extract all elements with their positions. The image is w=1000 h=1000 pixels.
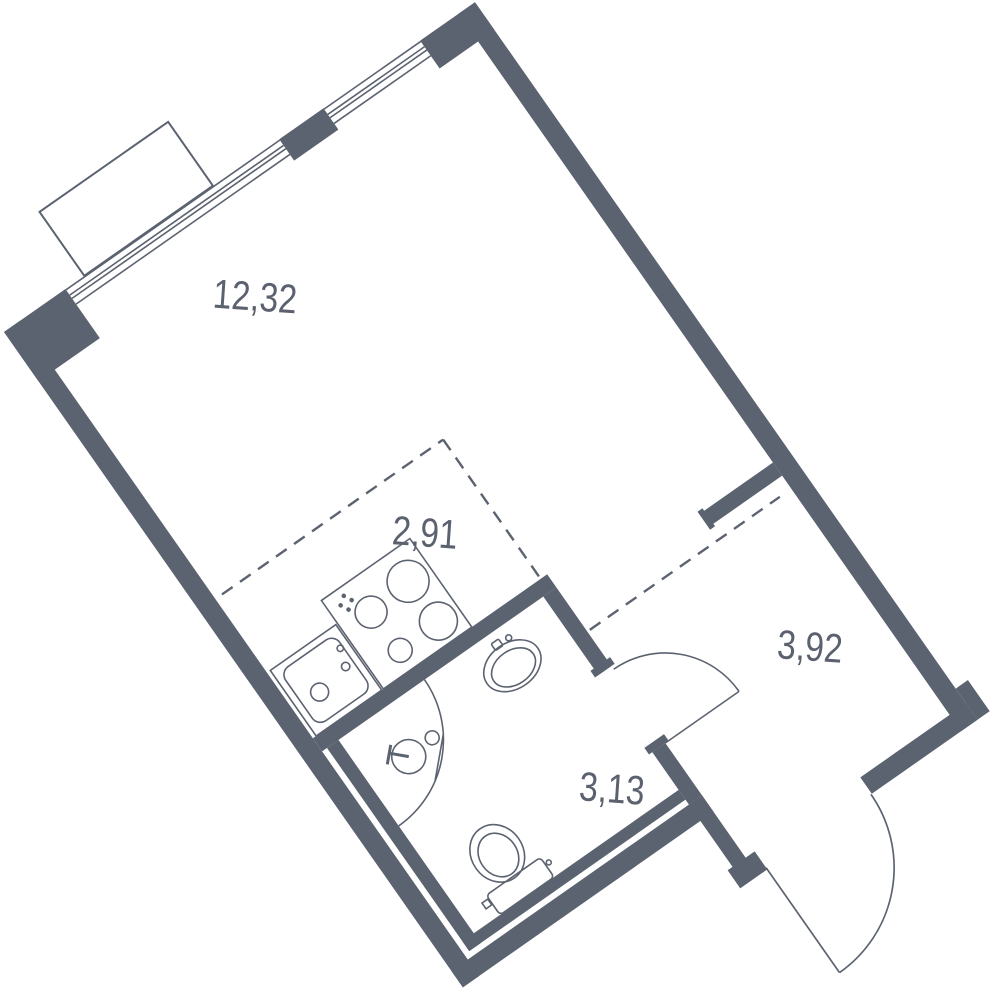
top-mid-pier (279, 108, 338, 160)
sink-faucet-handle (340, 661, 352, 673)
bathroom-cabin-wall-left (327, 740, 481, 951)
stove (321, 539, 471, 689)
area-label-living-room: 12,32 (211, 271, 298, 324)
bathroom-door-arc (614, 618, 739, 743)
area-label-hallway: 3,92 (776, 621, 845, 672)
top-left-corner-pier (4, 289, 100, 381)
kitchen-bathroom-wall (313, 574, 556, 751)
toilet-bowl (459, 814, 536, 893)
bathroom-door-leaf (665, 691, 739, 743)
floorplan-rotated-group (0, 0, 1000, 1000)
shower-door (416, 734, 463, 781)
bathroom-right-wall-upper (543, 587, 611, 675)
area-label-kitchen-zone: 2,91 (391, 507, 460, 558)
shower-enclosure-arc (338, 680, 484, 826)
entry-door-arc (766, 794, 944, 972)
right-wall (459, 2, 978, 731)
sink-faucet (336, 644, 345, 653)
floorplan-canvas: 12,32 2,91 3,92 3,13 (0, 0, 1000, 1000)
bathroom-door-swing (614, 618, 739, 743)
walls (4, 0, 991, 1000)
balcony (40, 122, 213, 276)
entry-door-leaf (766, 868, 839, 973)
hallway-dashed-line (590, 497, 780, 630)
toilet (446, 806, 559, 919)
shower-drain (422, 728, 441, 747)
sink-drain (307, 680, 332, 705)
burner (349, 590, 394, 635)
bathroom-cabin-wall-bottom (462, 790, 685, 951)
burner (379, 552, 437, 610)
entry-door-swing (766, 794, 944, 972)
floorplan-drawing (0, 0, 1000, 1000)
window-right (324, 41, 431, 123)
hallway-top-wall (703, 463, 782, 525)
burner (384, 634, 417, 667)
entry-wall-right (860, 703, 977, 793)
corner-shower (338, 680, 484, 826)
area-label-bathroom: 3,13 (578, 763, 647, 814)
left-wall (4, 321, 479, 988)
